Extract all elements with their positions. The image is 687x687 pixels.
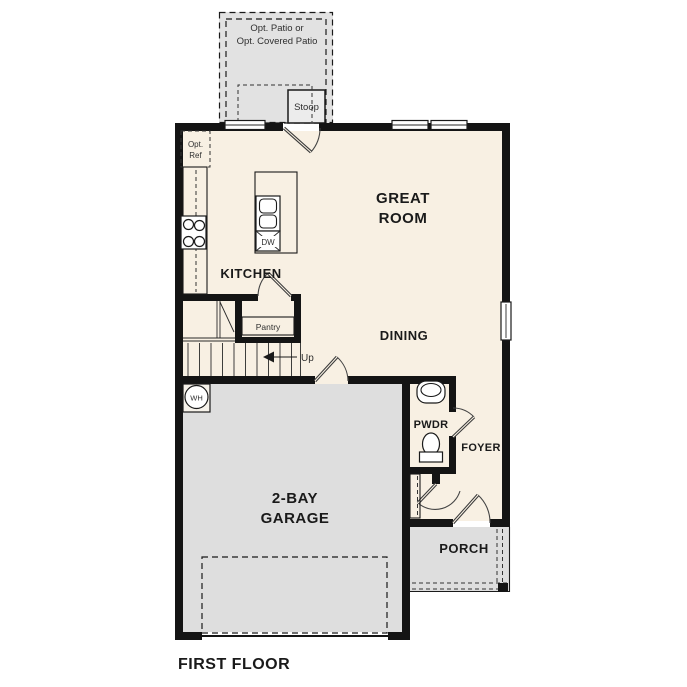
great-room-label-line2: ROOM <box>379 210 428 227</box>
floorplan-page: Opt. Patio or Opt. Covered Patio Stoop <box>0 0 687 687</box>
stoop-label: Stoop <box>294 102 319 113</box>
great-room-label-line1: GREAT <box>376 190 430 207</box>
garage-floor <box>183 384 402 632</box>
powder-sink <box>417 381 445 403</box>
range <box>181 216 206 249</box>
stoop: Stoop <box>288 90 325 123</box>
burner <box>195 237 205 247</box>
garage-label-line1: 2-BAY <box>272 490 318 507</box>
island-sink <box>256 196 280 231</box>
kitchen-window <box>225 121 265 130</box>
garage-label-line2: GARAGE <box>261 510 330 527</box>
burner <box>184 237 194 247</box>
floorplan-svg: Opt. Patio or Opt. Covered Patio Stoop <box>0 0 687 687</box>
water-heater: WH <box>183 384 210 412</box>
patio-label-line2: Opt. Covered Patio <box>237 36 318 47</box>
opt-ref-label-line2: Ref <box>189 151 202 160</box>
porch-post <box>498 583 508 592</box>
pantry-label: Pantry <box>256 322 281 332</box>
kitchen-label: KITCHEN <box>220 266 281 281</box>
water-heater-label: WH <box>190 394 203 403</box>
dining-window <box>501 302 511 340</box>
dishwasher-label: DW <box>261 238 275 247</box>
up-label: Up <box>301 353 314 364</box>
patio-label-line1: Opt. Patio or <box>250 23 303 34</box>
dishwasher: DW <box>256 231 280 251</box>
burner <box>184 220 194 230</box>
porch-slab <box>410 527 510 592</box>
plan-title: FIRST FLOOR <box>178 656 290 673</box>
foyer-label: FOYER <box>461 442 500 454</box>
dining-label: DINING <box>380 328 429 343</box>
opt-ref-label-line1: Opt. <box>188 140 203 149</box>
porch-label: PORCH <box>439 541 488 556</box>
great-room-window-right <box>431 121 467 130</box>
great-room-window-left <box>392 121 428 130</box>
burner <box>195 221 205 231</box>
powder-label: PWDR <box>414 419 449 431</box>
